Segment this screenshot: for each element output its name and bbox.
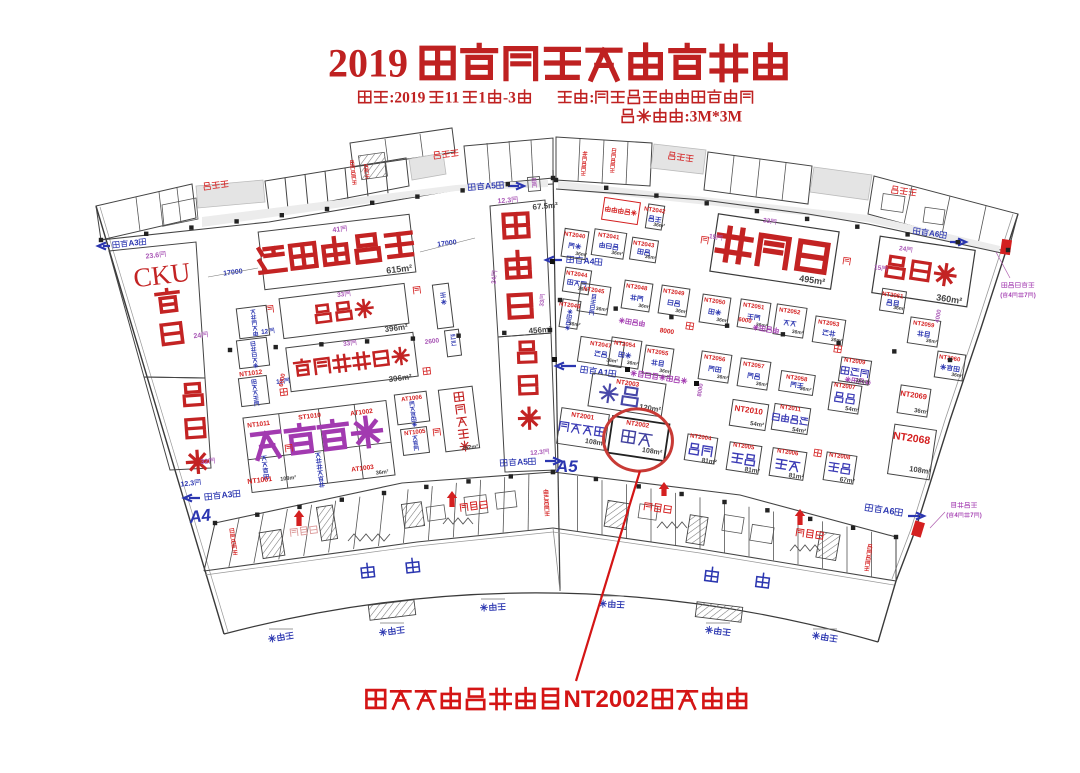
svg-text:24: 24 xyxy=(491,276,499,284)
svg-text:A4: A4 xyxy=(187,505,212,527)
svg-text:12.3: 12.3 xyxy=(497,197,511,205)
svg-text:24: 24 xyxy=(193,332,202,340)
svg-text::3M*3M: :3M*3M xyxy=(685,108,743,125)
svg-text:33: 33 xyxy=(539,299,546,307)
svg-text:): ) xyxy=(1034,293,1036,299)
svg-text:11: 11 xyxy=(445,89,460,106)
svg-text:A6: A6 xyxy=(929,229,941,239)
svg-text:A3: A3 xyxy=(128,238,140,248)
svg-text:12.3: 12.3 xyxy=(530,449,544,457)
svg-text:15: 15 xyxy=(873,264,882,272)
svg-text:33: 33 xyxy=(343,340,351,348)
svg-text:33: 33 xyxy=(762,217,771,225)
svg-text:A1: A1 xyxy=(597,366,609,377)
svg-text:24: 24 xyxy=(898,245,907,253)
svg-text:41: 41 xyxy=(332,226,341,234)
svg-text:A6: A6 xyxy=(882,505,895,517)
svg-text:NT2002: NT2002 xyxy=(564,686,649,713)
svg-text:32: 32 xyxy=(200,458,208,466)
svg-text:-3: -3 xyxy=(503,89,516,106)
svg-text:1: 1 xyxy=(478,89,486,106)
svg-text::: : xyxy=(589,89,594,106)
svg-text:2019: 2019 xyxy=(328,41,408,86)
svg-text:): ) xyxy=(980,513,982,519)
svg-text::2019: :2019 xyxy=(389,89,425,106)
svg-text:15: 15 xyxy=(708,233,717,241)
svg-text:33: 33 xyxy=(337,291,345,299)
svg-text:A5: A5 xyxy=(517,456,529,467)
svg-text:A5: A5 xyxy=(485,180,497,191)
svg-text:(: ( xyxy=(1000,293,1002,299)
svg-text:A3: A3 xyxy=(221,489,233,500)
svg-text:(: ( xyxy=(946,513,948,519)
